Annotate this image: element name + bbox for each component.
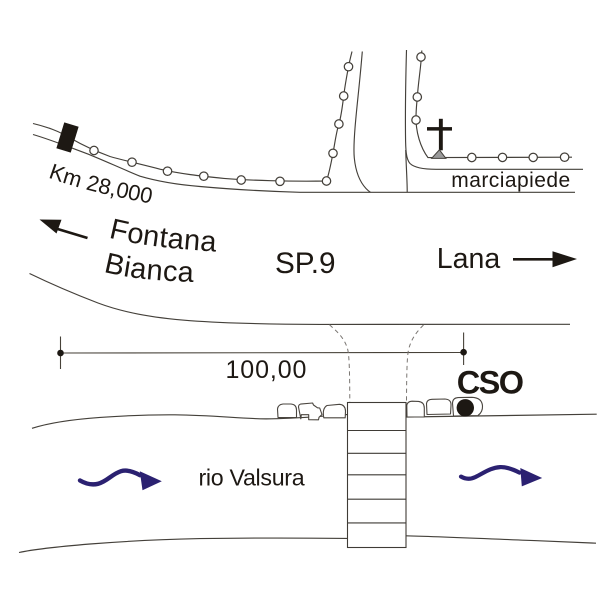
svg-text:rio Valsura: rio Valsura	[199, 465, 305, 491]
svg-text:marciapiede: marciapiede	[451, 169, 570, 192]
svg-text:CSO: CSO	[457, 364, 523, 400]
svg-text:100,00: 100,00	[226, 356, 308, 384]
svg-text:Lana: Lana	[437, 243, 501, 275]
svg-text:SP.9: SP.9	[275, 247, 336, 280]
